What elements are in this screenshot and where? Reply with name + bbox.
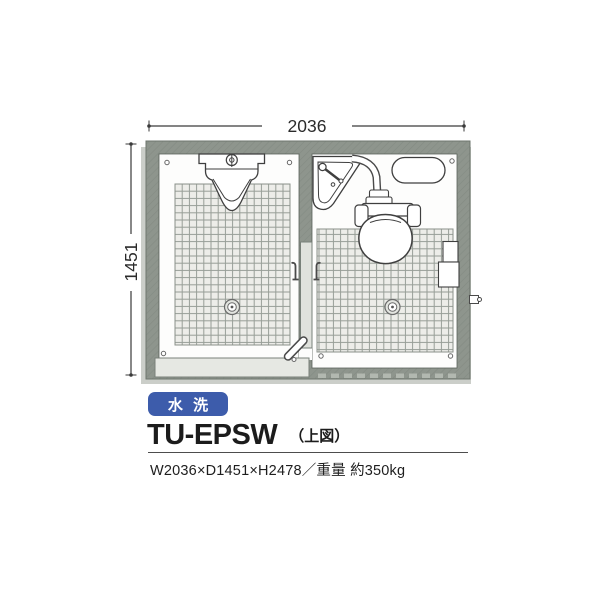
depth-dimension-label: 1451	[121, 243, 141, 282]
product-title: TU-EPSW（上図）	[147, 419, 349, 452]
dimension-depth: 1451	[121, 142, 141, 377]
spec-line: W2036×D1451×H2478／重量 約350kg	[150, 459, 405, 480]
product-sheet: 2036 1451	[0, 0, 600, 600]
right-floor-drain-icon	[385, 300, 400, 315]
floor-plan-drawing: 2036 1451	[0, 0, 600, 600]
outlet-stub-icon	[470, 296, 482, 304]
bottom-wall-notches	[318, 374, 456, 379]
width-dimension-label: 2036	[288, 116, 327, 136]
view-note: （上図）	[289, 428, 349, 445]
divider-rule	[148, 452, 468, 453]
water-tank-icon	[392, 158, 445, 184]
flush-type-label: 水 洗	[168, 394, 211, 415]
partition-door-edge	[301, 242, 313, 348]
flush-type-badge: 水 洗	[148, 392, 228, 416]
dimension-width: 2036	[147, 116, 466, 136]
entry-step	[155, 358, 309, 377]
model-number: TU-EPSW	[147, 419, 277, 451]
left-floor-drain-icon	[225, 300, 240, 315]
